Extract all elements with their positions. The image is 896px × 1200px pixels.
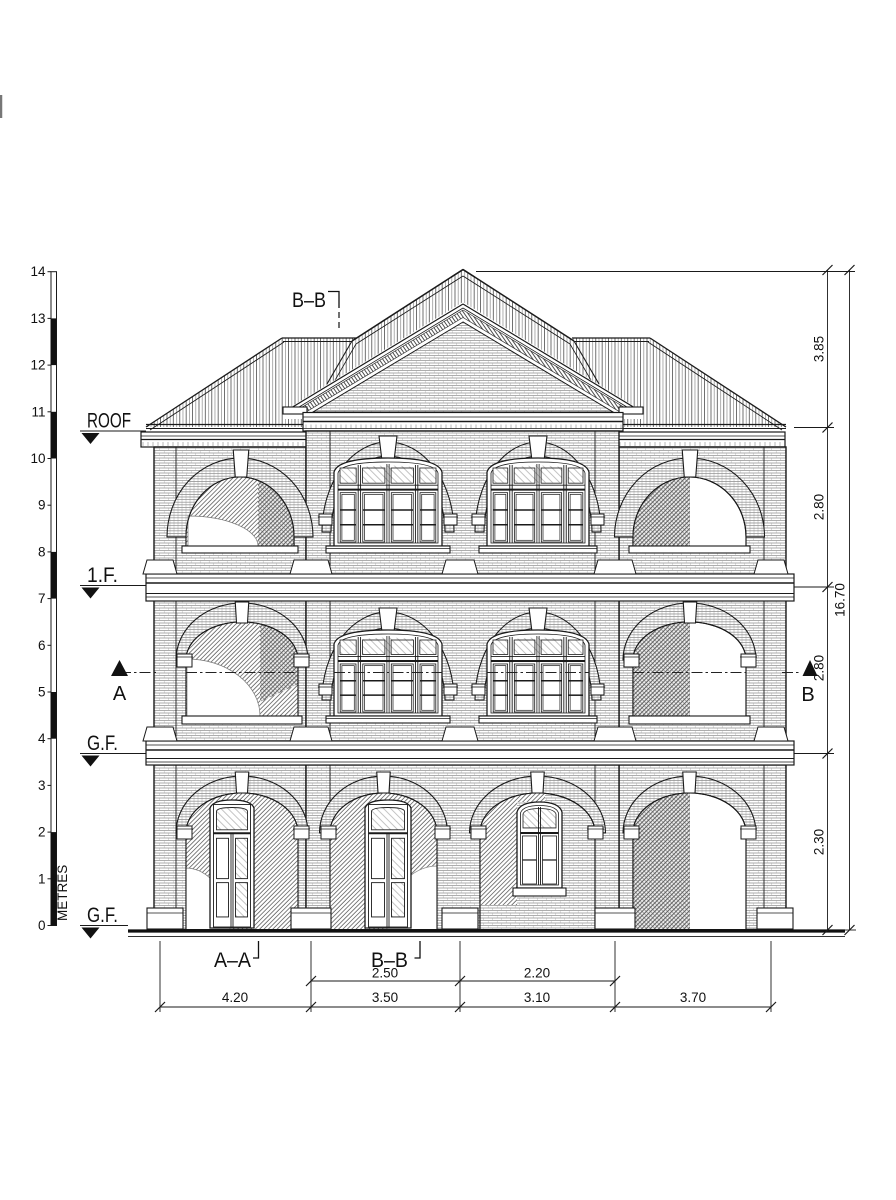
- svg-text:A–A: A–A: [214, 949, 251, 972]
- svg-text:0: 0: [38, 918, 46, 933]
- svg-text:3.70: 3.70: [680, 990, 706, 1005]
- svg-text:2.20: 2.20: [524, 966, 550, 981]
- svg-text:6: 6: [38, 638, 46, 653]
- svg-text:11: 11: [31, 404, 45, 419]
- svg-text:METRES: METRES: [55, 865, 70, 921]
- svg-text:9: 9: [38, 498, 46, 513]
- svg-text:A: A: [113, 683, 127, 705]
- svg-text:1: 1: [38, 871, 46, 886]
- svg-text:2: 2: [38, 825, 46, 840]
- svg-text:4: 4: [38, 731, 46, 746]
- svg-text:3.85: 3.85: [812, 336, 827, 362]
- svg-text:12: 12: [30, 358, 45, 373]
- svg-text:ROOF: ROOF: [87, 410, 131, 433]
- svg-text:B–B: B–B: [292, 289, 326, 312]
- svg-text:7: 7: [38, 591, 46, 606]
- svg-text:2.30: 2.30: [812, 829, 827, 855]
- svg-text:5: 5: [38, 685, 46, 700]
- svg-text:16.70: 16.70: [833, 583, 848, 617]
- svg-text:2.50: 2.50: [372, 966, 398, 981]
- svg-text:2.80: 2.80: [812, 494, 827, 520]
- svg-text:G.F.: G.F.: [87, 904, 118, 927]
- svg-text:14: 14: [30, 264, 46, 279]
- svg-text:G.F.: G.F.: [87, 732, 118, 755]
- svg-text:13: 13: [30, 311, 45, 326]
- svg-text:2.80: 2.80: [812, 655, 827, 681]
- svg-text:3.50: 3.50: [372, 990, 398, 1005]
- svg-text:4.20: 4.20: [222, 990, 248, 1005]
- svg-text:3: 3: [38, 778, 46, 793]
- svg-text:B: B: [801, 684, 814, 706]
- svg-text:1.F.: 1.F.: [87, 564, 118, 587]
- svg-text:8: 8: [38, 544, 46, 559]
- svg-text:10: 10: [30, 451, 45, 466]
- svg-text:3.10: 3.10: [524, 990, 550, 1005]
